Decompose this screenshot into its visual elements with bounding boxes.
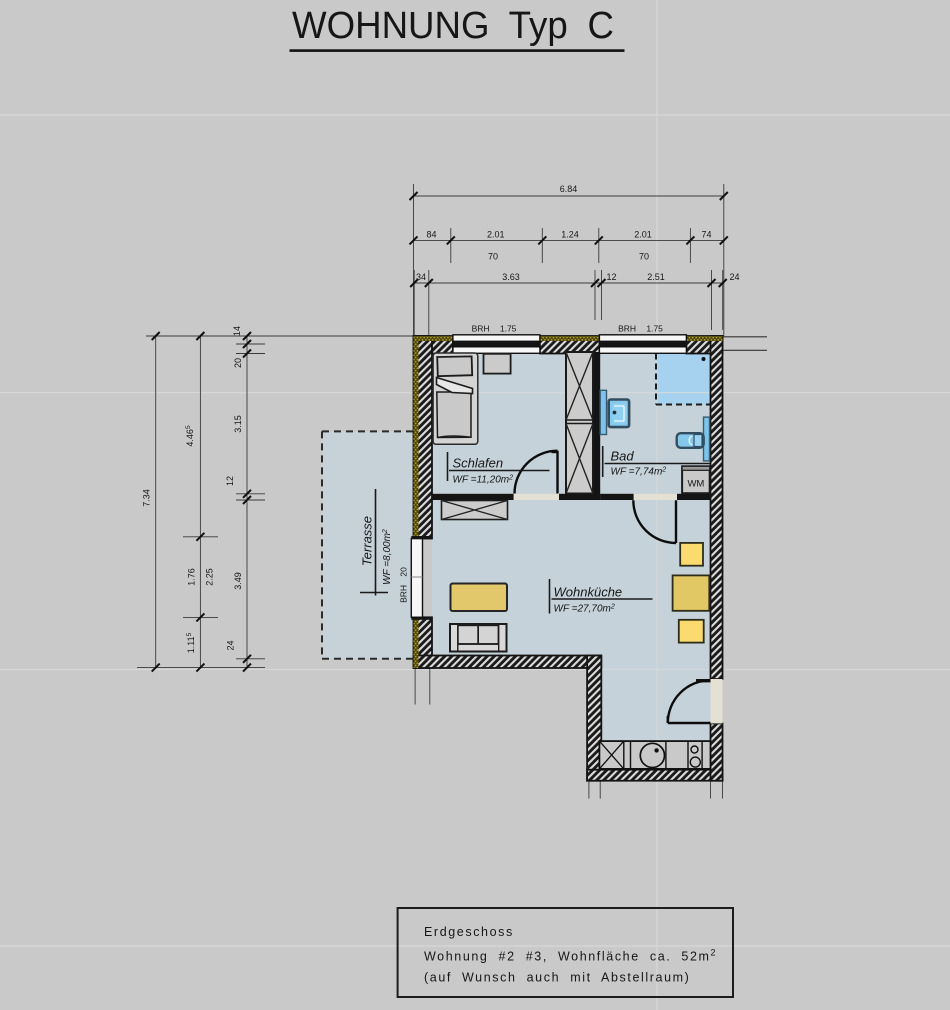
svg-text:Schlafen: Schlafen: [453, 456, 504, 471]
svg-text:WF =11,20m2: WF =11,20m2: [453, 475, 514, 486]
svg-text:70: 70: [488, 252, 498, 262]
svg-text:Wohnküche: Wohnküche: [554, 585, 623, 600]
svg-text:3.15: 3.15: [233, 415, 243, 433]
svg-text:2.51: 2.51: [647, 272, 665, 282]
svg-text:84: 84: [426, 230, 436, 240]
svg-text:Wohnung #2 #3, Wohnfläche ca.: Wohnung #2 #3, Wohnfläche ca. 52m2: [424, 948, 717, 964]
svg-text:BRH 1.75: BRH 1.75: [618, 324, 663, 334]
svg-text:Erdgeschoss: Erdgeschoss: [424, 925, 514, 939]
svg-text:WOHNUNG Typ C: WOHNUNG Typ C: [292, 5, 614, 47]
svg-text:24: 24: [729, 272, 739, 282]
svg-text:7.34: 7.34: [142, 489, 152, 507]
svg-text:2.25: 2.25: [205, 568, 215, 586]
svg-text:1.76: 1.76: [187, 568, 197, 586]
svg-text:2.01: 2.01: [487, 230, 505, 240]
svg-text:BRH 1.75: BRH 1.75: [472, 324, 517, 334]
svg-text:74: 74: [701, 230, 711, 240]
svg-text:20: 20: [233, 358, 243, 368]
svg-text:12: 12: [606, 272, 616, 282]
svg-text:70: 70: [639, 252, 649, 262]
svg-text:BRH 20: BRH 20: [399, 567, 409, 603]
svg-text:Bad: Bad: [611, 449, 635, 464]
svg-text:(auf Wunsch auch mit Abstellra: (auf Wunsch auch mit Abstellraum): [424, 971, 690, 985]
svg-text:6.84: 6.84: [560, 184, 578, 194]
svg-text:1.24: 1.24: [561, 230, 579, 240]
svg-text:12: 12: [225, 476, 235, 486]
svg-text:WF =27,70m2: WF =27,70m2: [554, 604, 615, 615]
svg-text:WM: WM: [687, 479, 704, 490]
svg-text:34: 34: [416, 272, 426, 282]
svg-text:3.63: 3.63: [502, 272, 520, 282]
svg-text:Terrasse: Terrasse: [360, 516, 375, 566]
svg-text:2.01: 2.01: [634, 230, 652, 240]
svg-text:3.49: 3.49: [233, 572, 243, 590]
svg-text:14: 14: [232, 326, 242, 336]
svg-text:24: 24: [226, 640, 236, 650]
svg-text:WF =7,74m2: WF =7,74m2: [611, 467, 667, 478]
svg-text:WF =8,00m2: WF =8,00m2: [382, 529, 393, 585]
